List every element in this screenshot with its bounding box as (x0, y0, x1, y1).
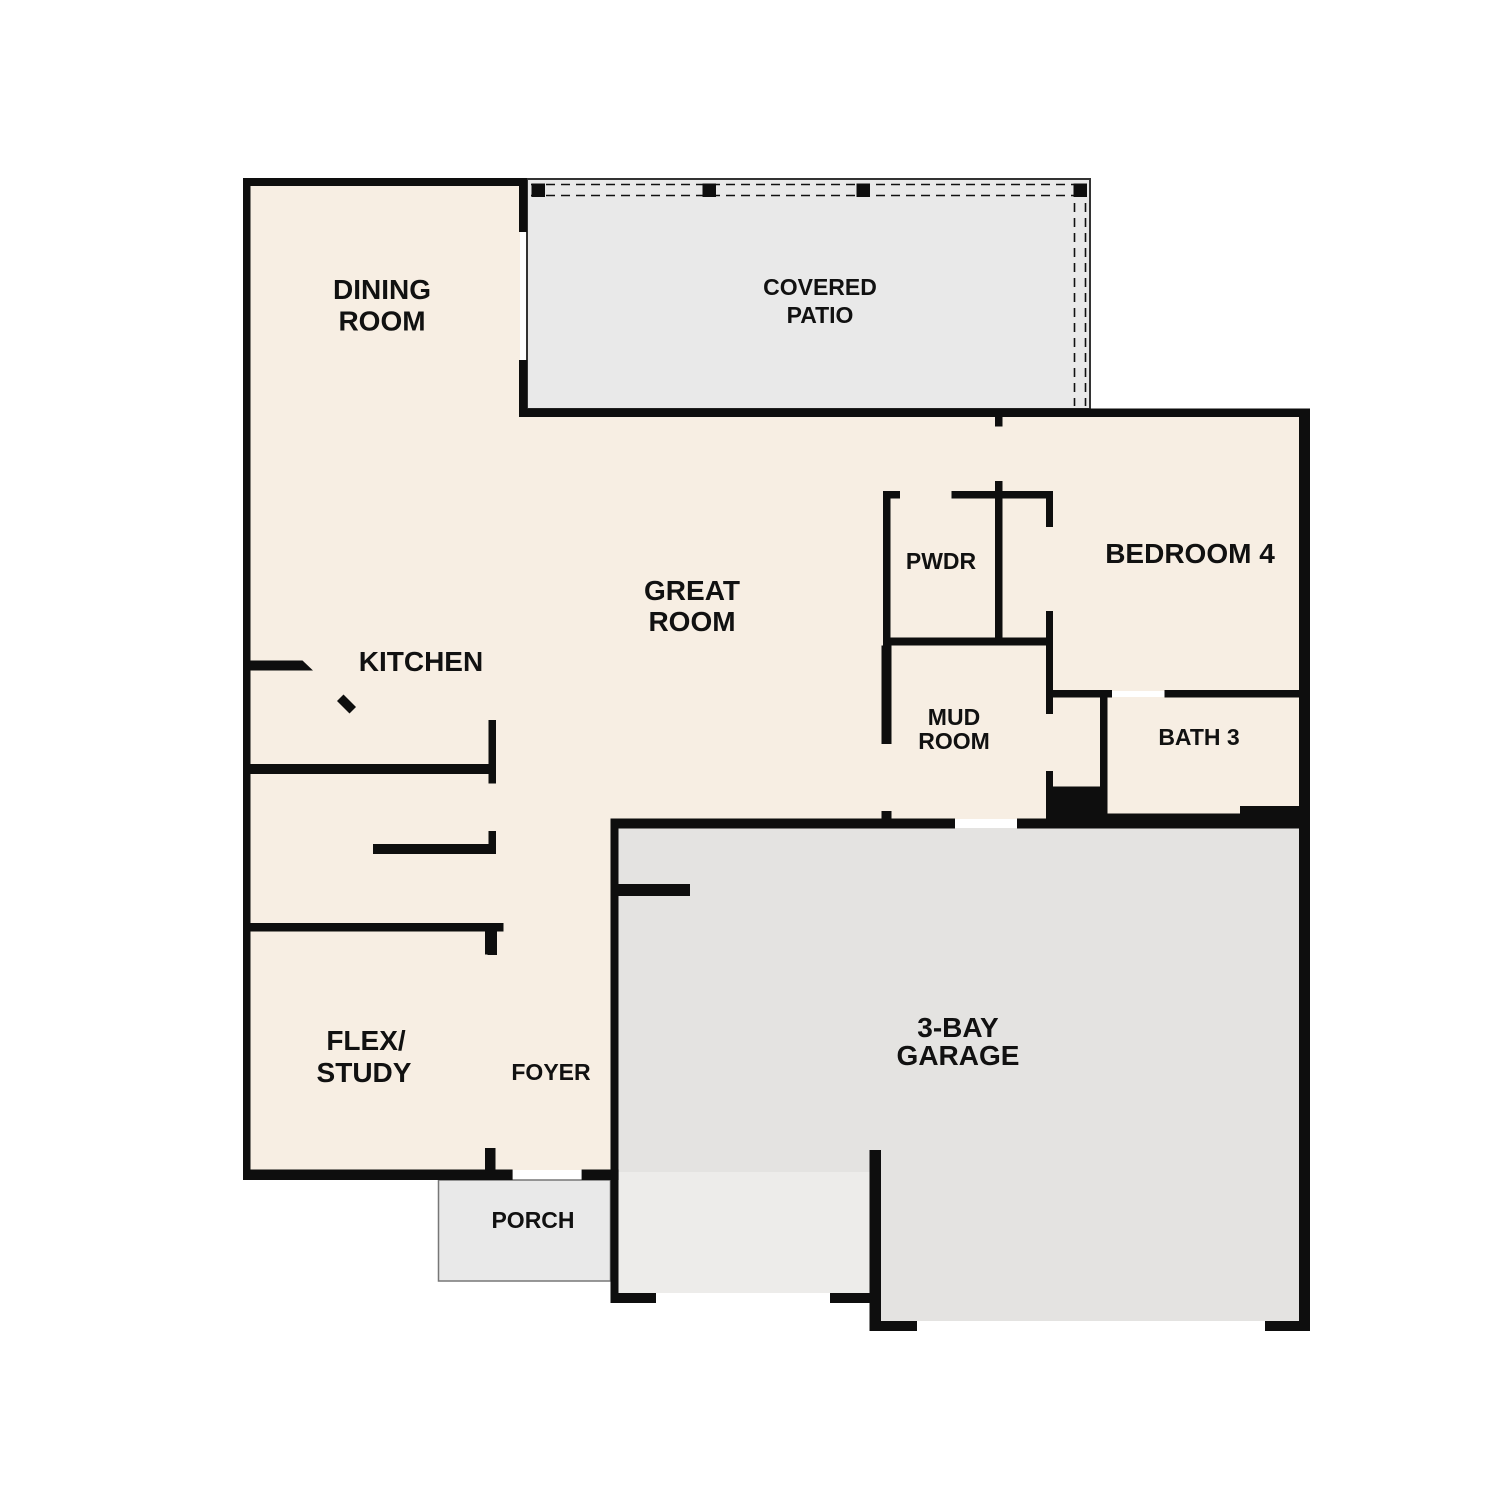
svg-text:FOYER: FOYER (511, 1059, 591, 1085)
svg-text:GREAT: GREAT (644, 575, 740, 606)
svg-text:FLEX/: FLEX/ (326, 1025, 406, 1056)
svg-text:3-BAY: 3-BAY (917, 1012, 999, 1043)
svg-text:PWDR: PWDR (906, 548, 977, 574)
svg-text:DINING: DINING (333, 274, 431, 305)
svg-text:BEDROOM 4: BEDROOM 4 (1105, 538, 1275, 569)
svg-text:GARAGE: GARAGE (897, 1040, 1020, 1071)
svg-text:MUD: MUD (928, 704, 980, 730)
svg-text:PATIO: PATIO (787, 302, 854, 328)
svg-text:BATH 3: BATH 3 (1158, 724, 1239, 750)
svg-text:ROOM: ROOM (918, 728, 990, 754)
svg-text:STUDY: STUDY (317, 1057, 412, 1088)
svg-text:ROOM: ROOM (648, 606, 735, 637)
svg-text:ROOM: ROOM (338, 306, 425, 337)
svg-text:KITCHEN: KITCHEN (359, 646, 483, 677)
svg-text:PORCH: PORCH (491, 1207, 574, 1233)
svg-text:COVERED: COVERED (763, 274, 877, 300)
